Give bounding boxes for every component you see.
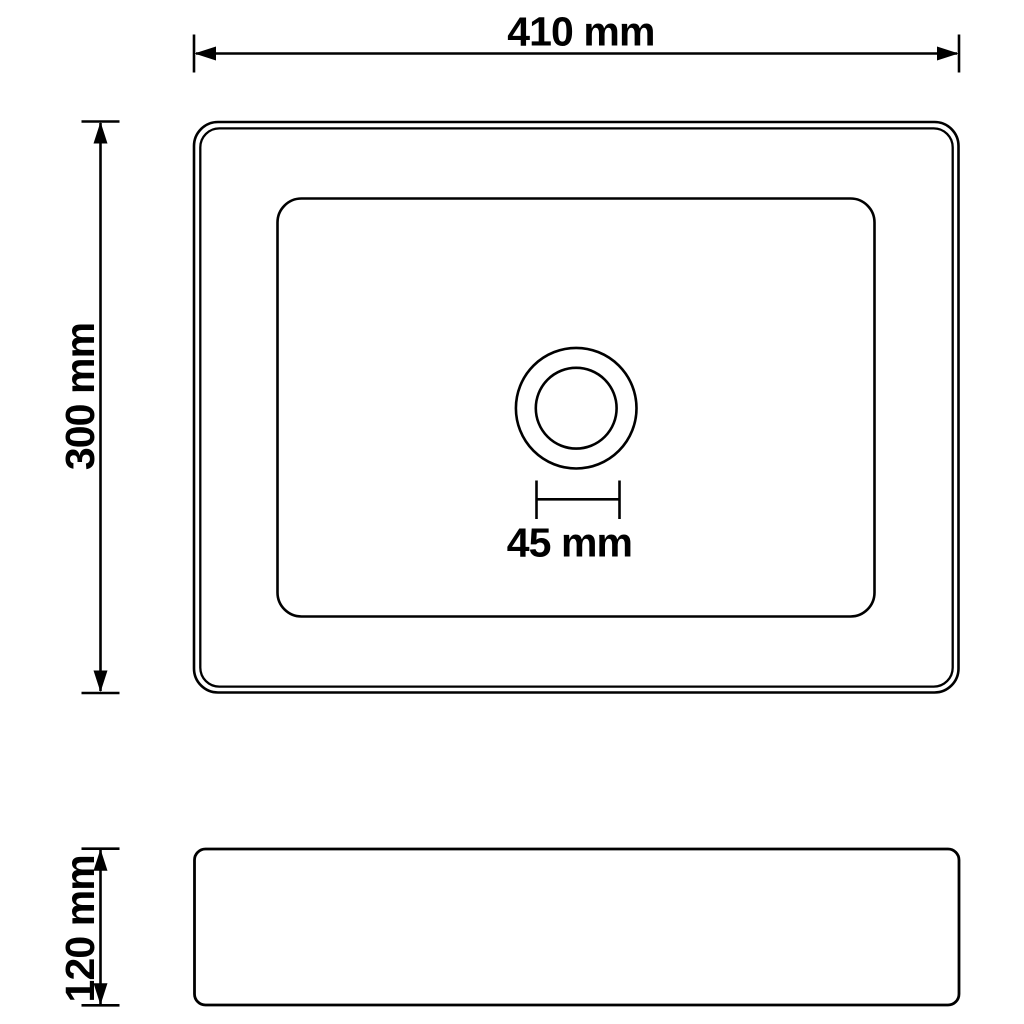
svg-text:120 mm: 120 mm (57, 855, 103, 1002)
svg-text:45 mm: 45 mm (507, 519, 632, 565)
svg-text:410 mm: 410 mm (507, 9, 654, 55)
svg-text:300 mm: 300 mm (57, 323, 103, 470)
